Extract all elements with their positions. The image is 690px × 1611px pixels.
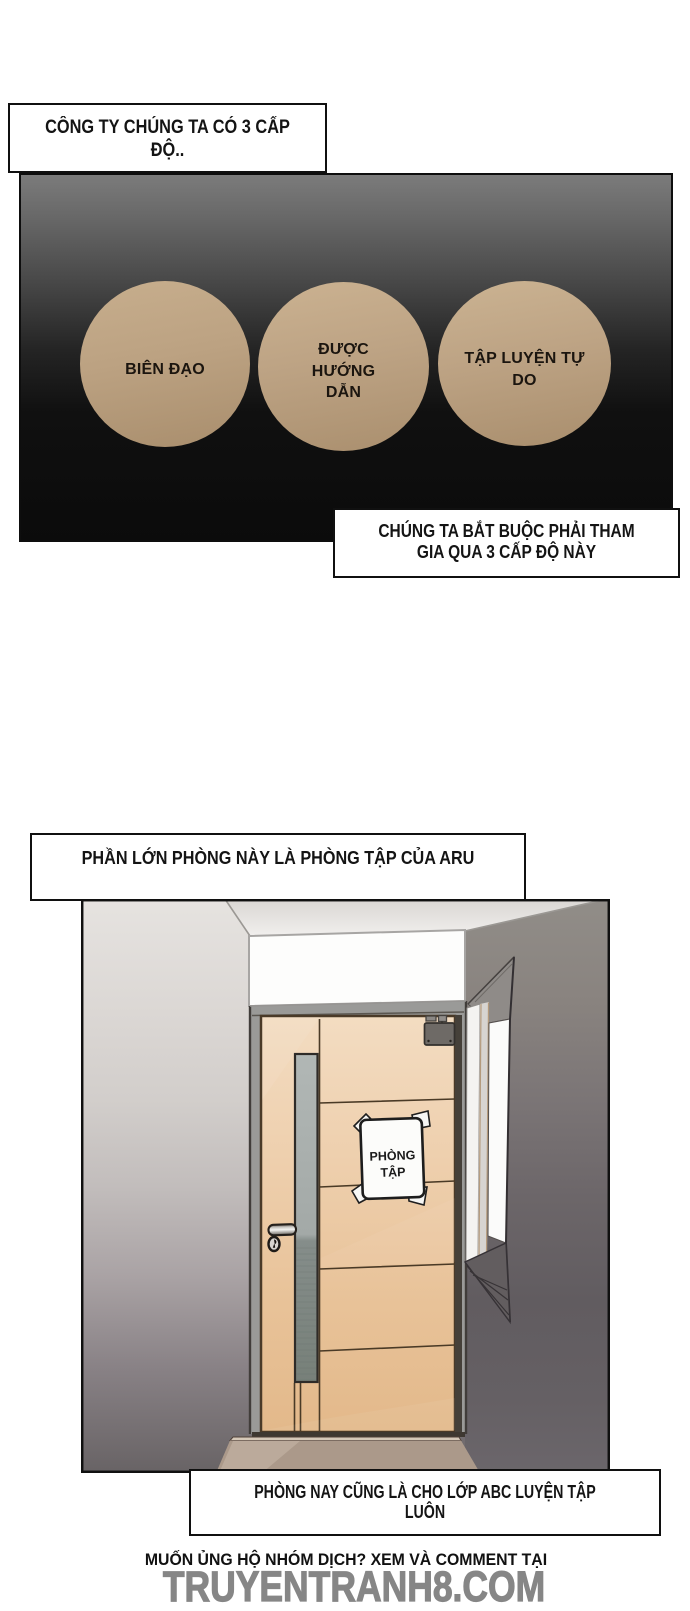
svg-text:TẬP: TẬP bbox=[380, 1164, 406, 1180]
svg-text:PHÒNG: PHÒNG bbox=[369, 1147, 415, 1164]
